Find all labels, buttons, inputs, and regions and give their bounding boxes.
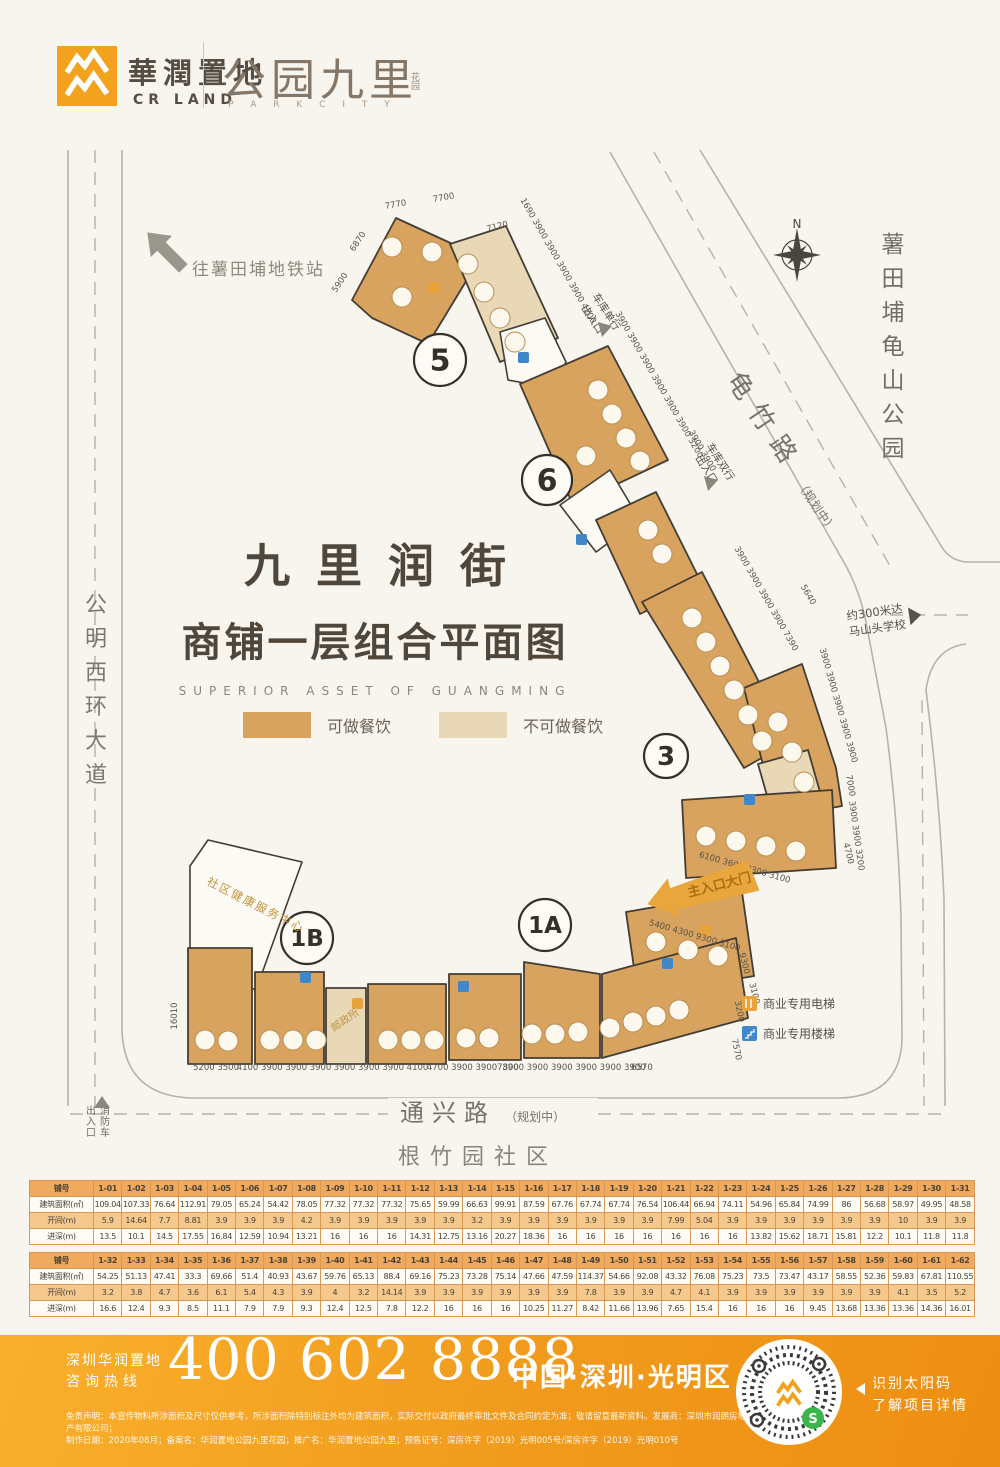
shop-unit-circle <box>422 242 442 262</box>
table-cell: 75.23 <box>718 1269 746 1285</box>
table-cell: 1-06 <box>236 1181 264 1197</box>
table-cell: 8.42 <box>576 1301 604 1317</box>
fire-access-icon <box>94 1096 110 1108</box>
table-cell: 65.84 <box>775 1197 803 1213</box>
row-header-cell: 开间(m) <box>30 1285 94 1301</box>
elevator-icon <box>742 996 757 1011</box>
shop-unit-circle <box>710 656 730 676</box>
table-cell: 75.23 <box>434 1269 462 1285</box>
table-cell: 69.16 <box>406 1269 434 1285</box>
dimension-label: 7700 <box>432 191 455 205</box>
project-seal: 花园 <box>408 72 421 90</box>
table-cell: 43.17 <box>804 1269 832 1285</box>
table-cell: 1-29 <box>889 1181 917 1197</box>
table-cell: 48.58 <box>946 1197 975 1213</box>
shop-unit-circle <box>382 237 402 257</box>
legend-label: 不可做餐饮 <box>523 713 603 737</box>
table-cell: 3.9 <box>321 1213 349 1229</box>
shop-unit-circle <box>456 1028 476 1048</box>
table-cell: 13.5 <box>94 1229 122 1245</box>
table-cell: 14.5 <box>150 1229 178 1245</box>
table-cell: 3.9 <box>775 1213 803 1229</box>
table-cell: 7.8 <box>576 1285 604 1301</box>
dimension-label: 3900 3900 3900 3900 7390 <box>732 545 800 653</box>
table-cell: 16 <box>775 1301 803 1317</box>
table-cell: 110.55 <box>946 1269 975 1285</box>
table-cell: 59.83 <box>889 1269 917 1285</box>
table-cell: 77.32 <box>349 1197 377 1213</box>
dimension-label: 4700 3900 3900 <box>427 1063 497 1073</box>
table-cell: 16.84 <box>207 1229 235 1245</box>
table-cell: 1-09 <box>321 1181 349 1197</box>
table-cell: 1-05 <box>207 1181 235 1197</box>
table-cell: 3.9 <box>775 1285 803 1301</box>
table-cell: 13.36 <box>889 1301 917 1317</box>
table-cell: 10.1 <box>889 1229 917 1245</box>
table-cell: 1-27 <box>832 1181 860 1197</box>
table-cell: 1-31 <box>946 1181 975 1197</box>
table-cell: 3.9 <box>378 1213 406 1229</box>
table-cell: 88.4 <box>378 1269 406 1285</box>
vertical-label: 薯田埔龟山公园 <box>882 232 905 462</box>
zone-number: 6 <box>537 464 558 499</box>
table-cell: 7.7 <box>150 1213 178 1229</box>
table-cell: 1-35 <box>179 1253 207 1269</box>
shop-unit-circle <box>652 544 672 564</box>
school-arrow-icon <box>908 606 922 625</box>
school-note: 约300米达 马山头学校 <box>846 599 923 639</box>
shop-unit-circle <box>283 1030 303 1050</box>
table-cell: 3.9 <box>718 1285 746 1301</box>
table-cell: 15.62 <box>775 1229 803 1245</box>
row-header-cell: 进深(m) <box>30 1301 94 1317</box>
table-cell: 13.21 <box>292 1229 320 1245</box>
table-cell: 3.9 <box>832 1213 860 1229</box>
shop-tables: 铺号1-011-021-031-041-051-061-071-081-091-… <box>29 1180 975 1324</box>
table-cell: 1-40 <box>321 1253 349 1269</box>
hotline-label-2: 咨询热线 <box>66 1371 142 1391</box>
community-label: 根竹园社区 <box>398 1145 558 1170</box>
table-cell: 3.9 <box>605 1285 633 1301</box>
table-cell: 54.25 <box>94 1269 122 1285</box>
table-cell: 3.9 <box>804 1213 832 1229</box>
qr-caption-line1: 识别太阳码 <box>872 1373 968 1395</box>
shop-unit-circle <box>724 680 744 700</box>
table-cell: 16 <box>378 1229 406 1245</box>
shop-unit-circle <box>794 772 814 792</box>
table-cell: 16 <box>548 1229 576 1245</box>
table-cell: 3.9 <box>917 1213 945 1229</box>
table-cell: 1-32 <box>94 1253 122 1269</box>
vertical-label: 消防车 <box>100 1104 110 1139</box>
shop-unit-circle <box>678 940 698 960</box>
table-cell: 1-25 <box>775 1181 803 1197</box>
stairs-legend: 商业专用楼梯 <box>742 1026 835 1041</box>
table-cell: 13.96 <box>633 1301 661 1317</box>
table-cell: 16 <box>662 1229 690 1245</box>
table-cell: 1-57 <box>804 1253 832 1269</box>
table-cell: 3.9 <box>804 1285 832 1301</box>
table-cell: 66.63 <box>463 1197 491 1213</box>
disclaimer-line2: 制作日期：2020年08月；备案名：华润置地公园九里花园；推广名：华润置地公园九… <box>66 1435 746 1447</box>
table-cell: 1-43 <box>406 1253 434 1269</box>
shop-unit-circle <box>756 836 776 856</box>
table-cell: 47.41 <box>150 1269 178 1285</box>
table-cell: 3.6 <box>179 1285 207 1301</box>
table-cell: 58.55 <box>832 1269 860 1285</box>
table-cell: 9.3 <box>150 1301 178 1317</box>
table-cell: 1-42 <box>378 1253 406 1269</box>
disclaimer: 免责声明：本宣传物料所涉面积及尺寸仅供参考，所涉面积除特别标注外均为建筑面积，实… <box>66 1411 746 1447</box>
location-label: 中国·深圳·光明区 <box>512 1357 732 1394</box>
table-cell: 1-26 <box>804 1181 832 1197</box>
table-cell: 10.25 <box>520 1301 548 1317</box>
table-cell: 3.2 <box>349 1285 377 1301</box>
table-cell: 66.94 <box>690 1197 718 1213</box>
table-cell: 11.27 <box>548 1301 576 1317</box>
table-cell: 1-56 <box>775 1253 803 1269</box>
dimension-label: 5640 <box>798 583 817 607</box>
table-cell: 1-50 <box>605 1253 633 1269</box>
table-cell: 7.8 <box>378 1301 406 1317</box>
shop-unit-circle <box>378 1030 398 1050</box>
stairs-icon <box>744 794 755 805</box>
table-cell: 1-55 <box>747 1253 775 1269</box>
table-row: 建筑面积(㎡)54.2551.1347.4133.369.6651.440.93… <box>30 1269 975 1285</box>
table-row: 进深(m)13.510.114.517.5516.8412.5910.9413.… <box>30 1229 975 1245</box>
table-cell: 9.3 <box>292 1301 320 1317</box>
table-cell: 1-28 <box>860 1181 888 1197</box>
table-cell: 1-10 <box>349 1181 377 1197</box>
metro-arrow-icon <box>137 222 194 279</box>
table-cell: 15.4 <box>690 1301 718 1317</box>
disclaimer-line1: 免责声明：本宣传物料所涉面积及尺寸仅供参考，所涉面积除特别标注外均为建筑面积，实… <box>66 1411 746 1435</box>
table-cell: 7.99 <box>662 1213 690 1229</box>
table-cell: 1-38 <box>264 1253 292 1269</box>
table-cell: 1-03 <box>150 1181 178 1197</box>
table-cell: 3.9 <box>236 1213 264 1229</box>
shop-unit-circle <box>623 1012 643 1032</box>
table-cell: 3.9 <box>406 1285 434 1301</box>
table-cell: 3.9 <box>747 1213 775 1229</box>
shop-unit-circle <box>306 1030 326 1050</box>
table-cell: 4.2 <box>292 1213 320 1229</box>
table-cell: 1-58 <box>832 1253 860 1269</box>
table-cell: 1-61 <box>917 1253 945 1269</box>
shop-unit-circle <box>479 1028 499 1048</box>
shop-unit-circle <box>260 1030 280 1050</box>
table-cell: 75.14 <box>491 1269 519 1285</box>
table-cell: 13.68 <box>832 1301 860 1317</box>
vertical-label: 出入口 <box>86 1104 96 1139</box>
table-cell: 3.9 <box>207 1213 235 1229</box>
table-cell: 18.36 <box>520 1229 548 1245</box>
table-cell: 12.5 <box>349 1301 377 1317</box>
table-cell: 16 <box>747 1301 775 1317</box>
qr-pointer-icon <box>856 1383 865 1395</box>
table-cell: 73.5 <box>747 1269 775 1285</box>
table-cell: 3.9 <box>491 1285 519 1301</box>
table-cell: 3.9 <box>747 1285 775 1301</box>
table-cell: 16 <box>633 1229 661 1245</box>
shop-unit-circle <box>458 254 478 274</box>
table-cell: 11.8 <box>946 1229 975 1245</box>
table-cell: 3.9 <box>860 1285 888 1301</box>
shop-unit-circle <box>195 1030 215 1050</box>
table-cell: 1-49 <box>576 1253 604 1269</box>
shop-unit-circle <box>646 932 666 952</box>
stairs-icon <box>458 981 469 992</box>
table-cell: 16.6 <box>94 1301 122 1317</box>
table-cell: 73.47 <box>775 1269 803 1285</box>
table-row: 铺号1-321-331-341-351-361-371-381-391-401-… <box>30 1253 975 1269</box>
no-dining-swatch <box>439 712 507 738</box>
table-cell: 43.32 <box>662 1269 690 1285</box>
shop-unit-circle <box>638 520 658 540</box>
table-cell: 1-36 <box>207 1253 235 1269</box>
page-header: 華潤置地 CR LAND 公园九里 花园 P A R K C I T Y <box>0 0 1000 128</box>
table-cell: 1-37 <box>236 1253 264 1269</box>
table-cell: 65.24 <box>236 1197 264 1213</box>
row-header-cell: 铺号 <box>30 1253 94 1269</box>
table-cell: 1-41 <box>349 1253 377 1269</box>
table-cell: 3.9 <box>946 1213 975 1229</box>
header-divider <box>203 42 204 108</box>
svg-text:商业专用电梯: 商业专用电梯 <box>763 996 835 1011</box>
table-cell: 56.68 <box>860 1197 888 1213</box>
table-cell: 11.1 <box>207 1301 235 1317</box>
table-cell: 3.9 <box>520 1213 548 1229</box>
table-cell: 79.05 <box>207 1197 235 1213</box>
shop-unit-circle <box>616 428 636 448</box>
table-cell: 16 <box>349 1229 377 1245</box>
table-cell: 4.3 <box>264 1285 292 1301</box>
table-cell: 1-30 <box>917 1181 945 1197</box>
table-cell: 3.9 <box>434 1213 462 1229</box>
table-cell: 59.76 <box>321 1269 349 1285</box>
elevator-icon <box>428 282 439 293</box>
table-cell: 14.64 <box>122 1213 150 1229</box>
table-cell: 1-62 <box>946 1253 975 1269</box>
qr-caption: 识别太阳码 了解项目详情 <box>872 1373 968 1417</box>
table-cell: 49.95 <box>917 1197 945 1213</box>
table-cell: 74.99 <box>804 1197 832 1213</box>
table-cell: 1-14 <box>463 1181 491 1197</box>
table-cell: 86 <box>832 1197 860 1213</box>
stairs-icon <box>518 352 529 363</box>
table-cell: 1-07 <box>264 1181 292 1197</box>
table-cell: 4.7 <box>150 1285 178 1301</box>
table-cell: 1-46 <box>491 1253 519 1269</box>
compass-icon <box>773 228 821 282</box>
shop-unit-circle <box>602 404 622 424</box>
table-cell: 3.2 <box>463 1213 491 1229</box>
table-cell: 1-51 <box>633 1253 661 1269</box>
table-cell: 12.4 <box>122 1301 150 1317</box>
table-cell: 3.9 <box>832 1285 860 1301</box>
table-cell: 51.4 <box>236 1269 264 1285</box>
table-cell: 1-23 <box>718 1181 746 1197</box>
table-cell: 77.32 <box>321 1197 349 1213</box>
table-cell: 99.91 <box>491 1197 519 1213</box>
dimension-label: 7770 <box>384 198 407 212</box>
table-cell: 1-02 <box>122 1181 150 1197</box>
table-cell: 16 <box>491 1301 519 1317</box>
table-cell: 15.81 <box>832 1229 860 1245</box>
table-cell: 12.75 <box>434 1229 462 1245</box>
table-cell: 58.97 <box>889 1197 917 1213</box>
table-cell: 17.55 <box>179 1229 207 1245</box>
table-cell: 16.01 <box>946 1301 975 1317</box>
table-cell: 51.13 <box>122 1269 150 1285</box>
table-cell: 1-53 <box>690 1253 718 1269</box>
shop-unit-circle <box>738 705 758 725</box>
footer: 深圳华润置地 咨询热线 400 602 8888 中国·深圳·光明区 S 识别太… <box>0 1335 1000 1467</box>
table-cell: 3.9 <box>548 1285 576 1301</box>
table-cell: 16 <box>463 1301 491 1317</box>
table-cell: 114.37 <box>576 1269 604 1285</box>
table-cell: 1-54 <box>718 1253 746 1269</box>
qr-sun-code: S <box>735 1338 843 1446</box>
table-cell: 16 <box>321 1229 349 1245</box>
table-cell: 87.59 <box>520 1197 548 1213</box>
table-cell: 1-13 <box>434 1181 462 1197</box>
table-cell: 4 <box>321 1285 349 1301</box>
table-cell: 3.9 <box>264 1213 292 1229</box>
table-cell: 16 <box>690 1229 718 1245</box>
shop-unit-circle <box>768 712 788 732</box>
dimension-label: 5900 <box>330 271 350 295</box>
table-cell: 14.31 <box>406 1229 434 1245</box>
dimension-label: 16010 <box>170 1002 180 1029</box>
table-cell: 1-12 <box>406 1181 434 1197</box>
table-cell: 40.93 <box>264 1269 292 1285</box>
table-cell: 1-08 <box>292 1181 320 1197</box>
shop-unit-circle <box>646 1006 666 1026</box>
table-cell: 12.2 <box>406 1301 434 1317</box>
table-row: 开间(m)5.914.647.78.813.93.93.94.23.93.93.… <box>30 1213 975 1229</box>
table-cell: 8.5 <box>179 1301 207 1317</box>
table-row: 铺号1-011-021-031-041-051-061-071-081-091-… <box>30 1181 975 1197</box>
dimension-label: 6870 <box>348 230 368 254</box>
zone-number: 1A <box>528 913 562 939</box>
shop-unit-circle <box>392 287 412 307</box>
shop-unit-circle <box>696 632 716 652</box>
table-cell: 1-21 <box>662 1181 690 1197</box>
shop-unit-circle <box>588 380 608 400</box>
table-cell: 3.9 <box>292 1285 320 1301</box>
shop-unit-circle <box>726 831 746 851</box>
hotline-label-1: 深圳华润置地 <box>66 1350 162 1370</box>
table-cell: 3.9 <box>406 1213 434 1229</box>
legend-label: 可做餐饮 <box>327 713 391 737</box>
table-cell: 3.9 <box>633 1213 661 1229</box>
table-cell: 4.7 <box>662 1285 690 1301</box>
table-cell: 1-60 <box>889 1253 917 1269</box>
table-cell: 77.32 <box>378 1197 406 1213</box>
shop-table-2: 铺号1-321-331-341-351-361-371-381-391-401-… <box>29 1252 975 1317</box>
table-cell: 5.2 <box>946 1285 975 1301</box>
table-cell: 1-44 <box>434 1253 462 1269</box>
table-cell: 109.04 <box>94 1197 122 1213</box>
table-cell: 7.9 <box>264 1301 292 1317</box>
table-cell: 47.66 <box>520 1269 548 1285</box>
vertical-label: 公明西环大道 <box>85 593 107 788</box>
shop-table-1: 铺号1-011-021-031-041-051-061-071-081-091-… <box>29 1180 975 1245</box>
table-cell: 16 <box>434 1301 462 1317</box>
table-cell: 18.71 <box>804 1229 832 1245</box>
table-cell: 10.1 <box>122 1229 150 1245</box>
table-cell: 16 <box>718 1229 746 1245</box>
shop-unit-circle <box>786 841 806 861</box>
table-cell: 3.2 <box>94 1285 122 1301</box>
table-cell: 13.36 <box>860 1301 888 1317</box>
table-cell: 43.67 <box>292 1269 320 1285</box>
table-cell: 3.9 <box>520 1285 548 1301</box>
legend-item-dining: 可做餐饮 <box>243 712 391 738</box>
shop-unit-circle <box>669 1000 689 1020</box>
shop-unit-circle <box>696 826 716 846</box>
table-cell: 3.9 <box>860 1213 888 1229</box>
table-cell: 1-24 <box>747 1181 775 1197</box>
shop-unit-circle <box>218 1031 238 1051</box>
legend-item-no-dining: 不可做餐饮 <box>439 712 603 738</box>
shop-unit-circle <box>630 451 650 471</box>
road-label-guizhu: 龟竹路 （规划中） <box>720 367 848 537</box>
table-cell: 76.54 <box>633 1197 661 1213</box>
table-cell: 13.16 <box>463 1229 491 1245</box>
table-cell: 67.74 <box>605 1197 633 1213</box>
table-cell: 14.14 <box>378 1285 406 1301</box>
table-row: 开间(m)3.23.84.73.66.15.44.33.943.214.143.… <box>30 1285 975 1301</box>
table-row: 进深(m)16.612.49.38.511.17.97.99.312.412.5… <box>30 1301 975 1317</box>
shop-unit-circle <box>782 742 802 762</box>
table-cell: 4.1 <box>690 1285 718 1301</box>
zone-number: 5 <box>430 344 451 379</box>
table-cell: 33.3 <box>179 1269 207 1285</box>
table-cell: 3.9 <box>548 1213 576 1229</box>
table-cell: 78.05 <box>292 1197 320 1213</box>
table-cell: 75.65 <box>406 1197 434 1213</box>
shop-unit-circle <box>752 731 772 751</box>
dimension-label: 6570 <box>631 1063 653 1073</box>
stairs-icon <box>742 1026 757 1041</box>
table-cell: 10.94 <box>264 1229 292 1245</box>
shop-unit-circle <box>505 332 525 352</box>
shop-unit-circle <box>401 1030 421 1050</box>
table-cell: 3.8 <box>122 1285 150 1301</box>
table-cell: 10 <box>889 1213 917 1229</box>
shop-unit-circle <box>522 1024 542 1044</box>
table-cell: 1-34 <box>150 1253 178 1269</box>
stairs-icon <box>662 958 673 969</box>
table-cell: 76.64 <box>150 1197 178 1213</box>
shop-unit-circle <box>568 1022 588 1042</box>
table-cell: 74.11 <box>718 1197 746 1213</box>
crland-logo-icon <box>57 46 117 106</box>
dimension-label: 7000 <box>843 774 857 797</box>
dimension-label: 5200 3500 <box>193 1063 239 1073</box>
table-cell: 12.2 <box>860 1229 888 1245</box>
dimension-label: 3900 3900 3900 3900 3900 3900 <box>502 1063 645 1073</box>
table-cell: 52.36 <box>860 1269 888 1285</box>
metro-label: 往薯田埔地铁站 <box>192 260 325 280</box>
qr-caption-line2: 了解项目详情 <box>872 1395 968 1417</box>
project-name: 公园九里 <box>222 44 418 108</box>
table-cell: 92.08 <box>633 1269 661 1285</box>
table-cell: 3.9 <box>349 1213 377 1229</box>
table-cell: 1-47 <box>520 1253 548 1269</box>
